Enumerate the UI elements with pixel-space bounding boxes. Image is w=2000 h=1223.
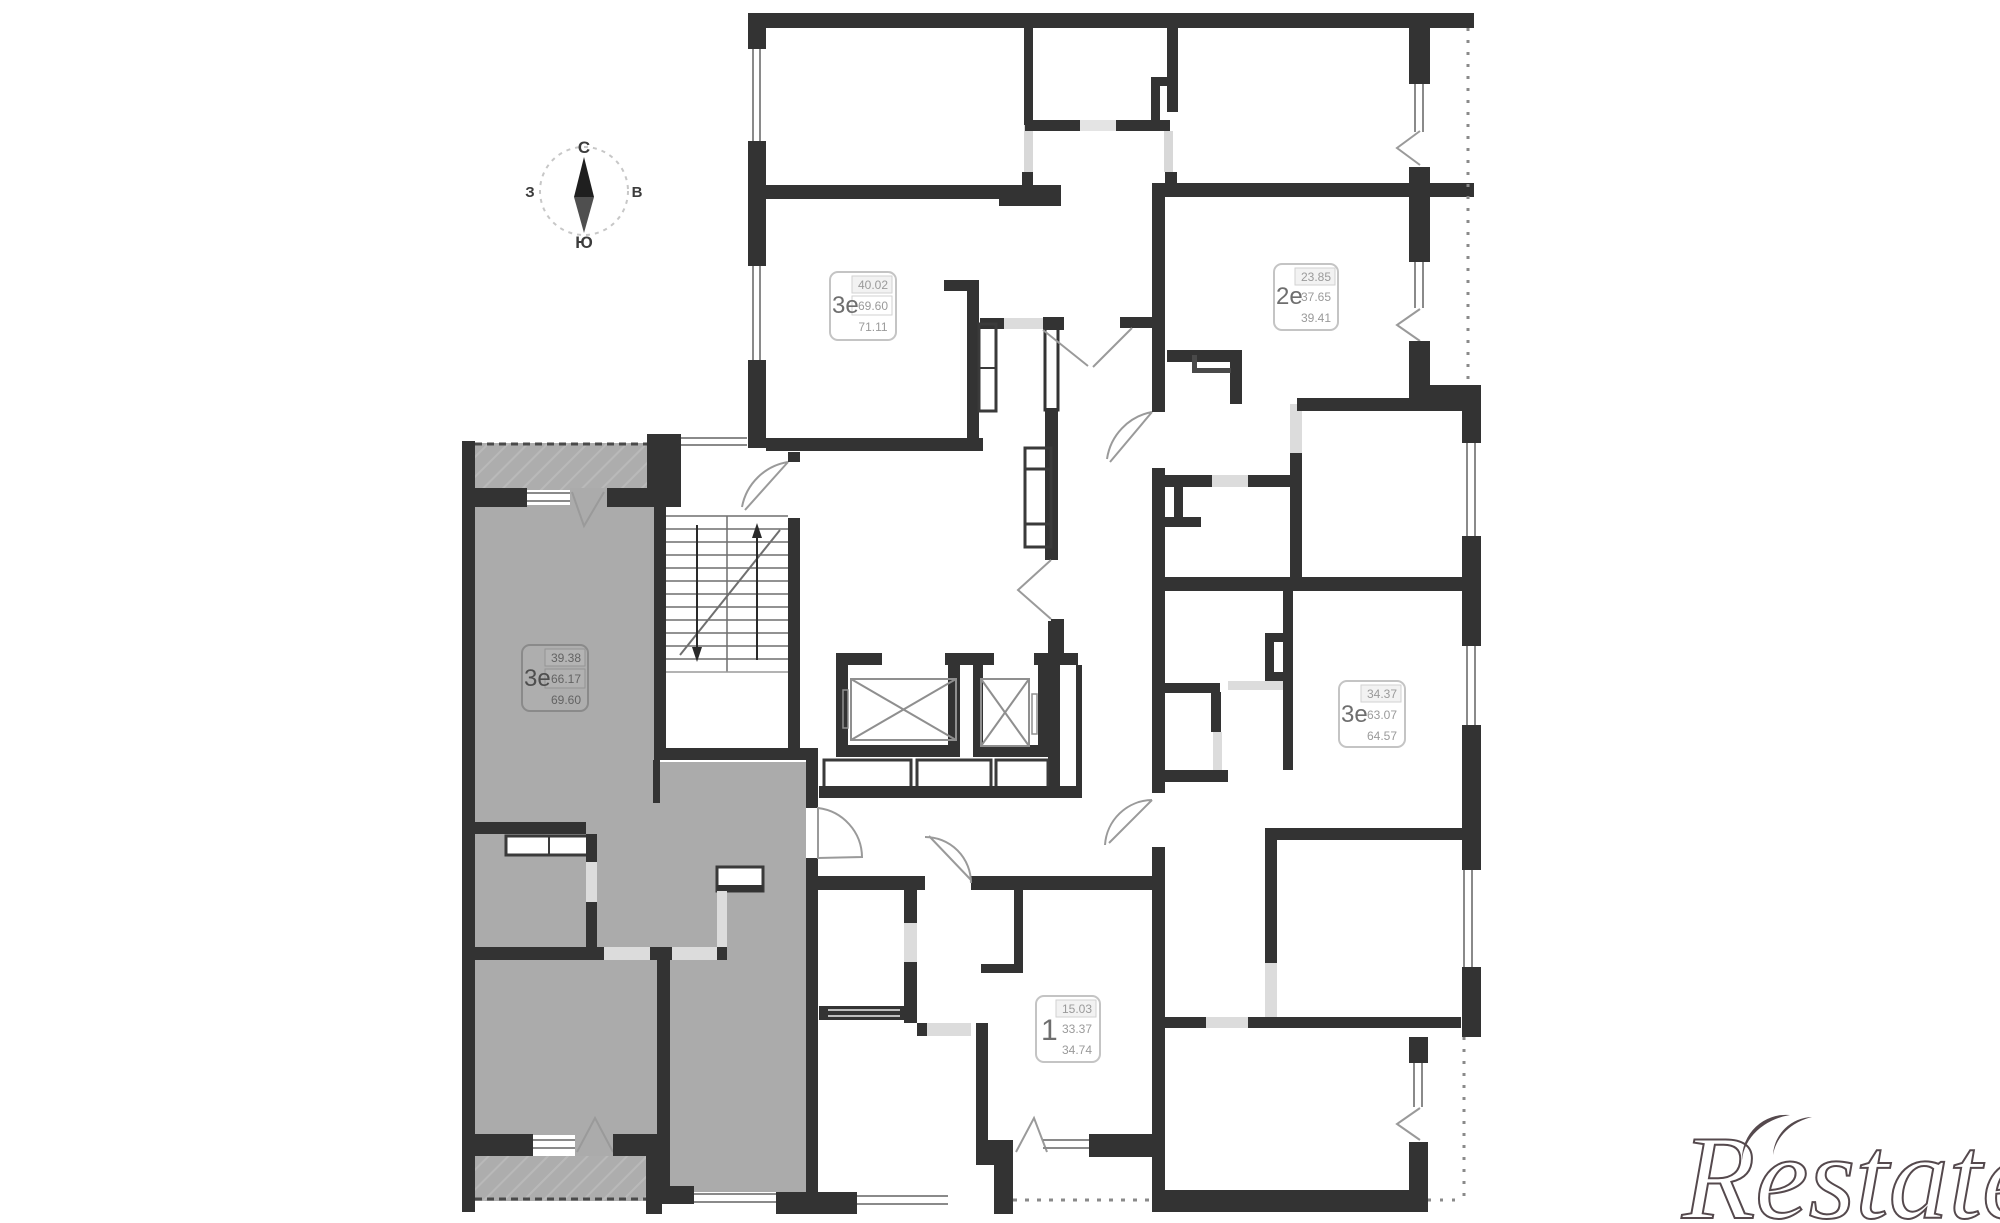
svg-text:63.07: 63.07 (1367, 708, 1397, 722)
svg-text:3е: 3е (1341, 701, 1368, 728)
svg-text:37.65: 37.65 (1301, 290, 1331, 304)
svg-text:34.74: 34.74 (1062, 1043, 1092, 1057)
svg-text:В: В (632, 184, 643, 201)
svg-text:3е: 3е (524, 665, 551, 692)
svg-text:Ю: Ю (575, 233, 593, 252)
svg-text:С: С (578, 138, 590, 157)
svg-text:1: 1 (1041, 1014, 1058, 1047)
svg-text:71.11: 71.11 (858, 320, 887, 334)
svg-text:64.57: 64.57 (1367, 729, 1397, 743)
svg-text:15.03: 15.03 (1062, 1002, 1092, 1016)
svg-text:3е: 3е (832, 292, 859, 319)
svg-text:33.37: 33.37 (1062, 1022, 1092, 1036)
svg-text:2е: 2е (1276, 283, 1303, 310)
svg-text:69.60: 69.60 (858, 299, 888, 313)
svg-text:Restate: Restate (1681, 1111, 2000, 1223)
svg-text:23.85: 23.85 (1301, 270, 1331, 284)
svg-text:39.41: 39.41 (1301, 311, 1331, 325)
svg-text:34.37: 34.37 (1367, 687, 1397, 701)
svg-text:З: З (525, 184, 534, 201)
svg-text:69.60: 69.60 (551, 693, 581, 707)
svg-text:66.17: 66.17 (551, 672, 581, 686)
svg-text:40.02: 40.02 (858, 278, 888, 292)
svg-text:39.38: 39.38 (551, 651, 581, 665)
